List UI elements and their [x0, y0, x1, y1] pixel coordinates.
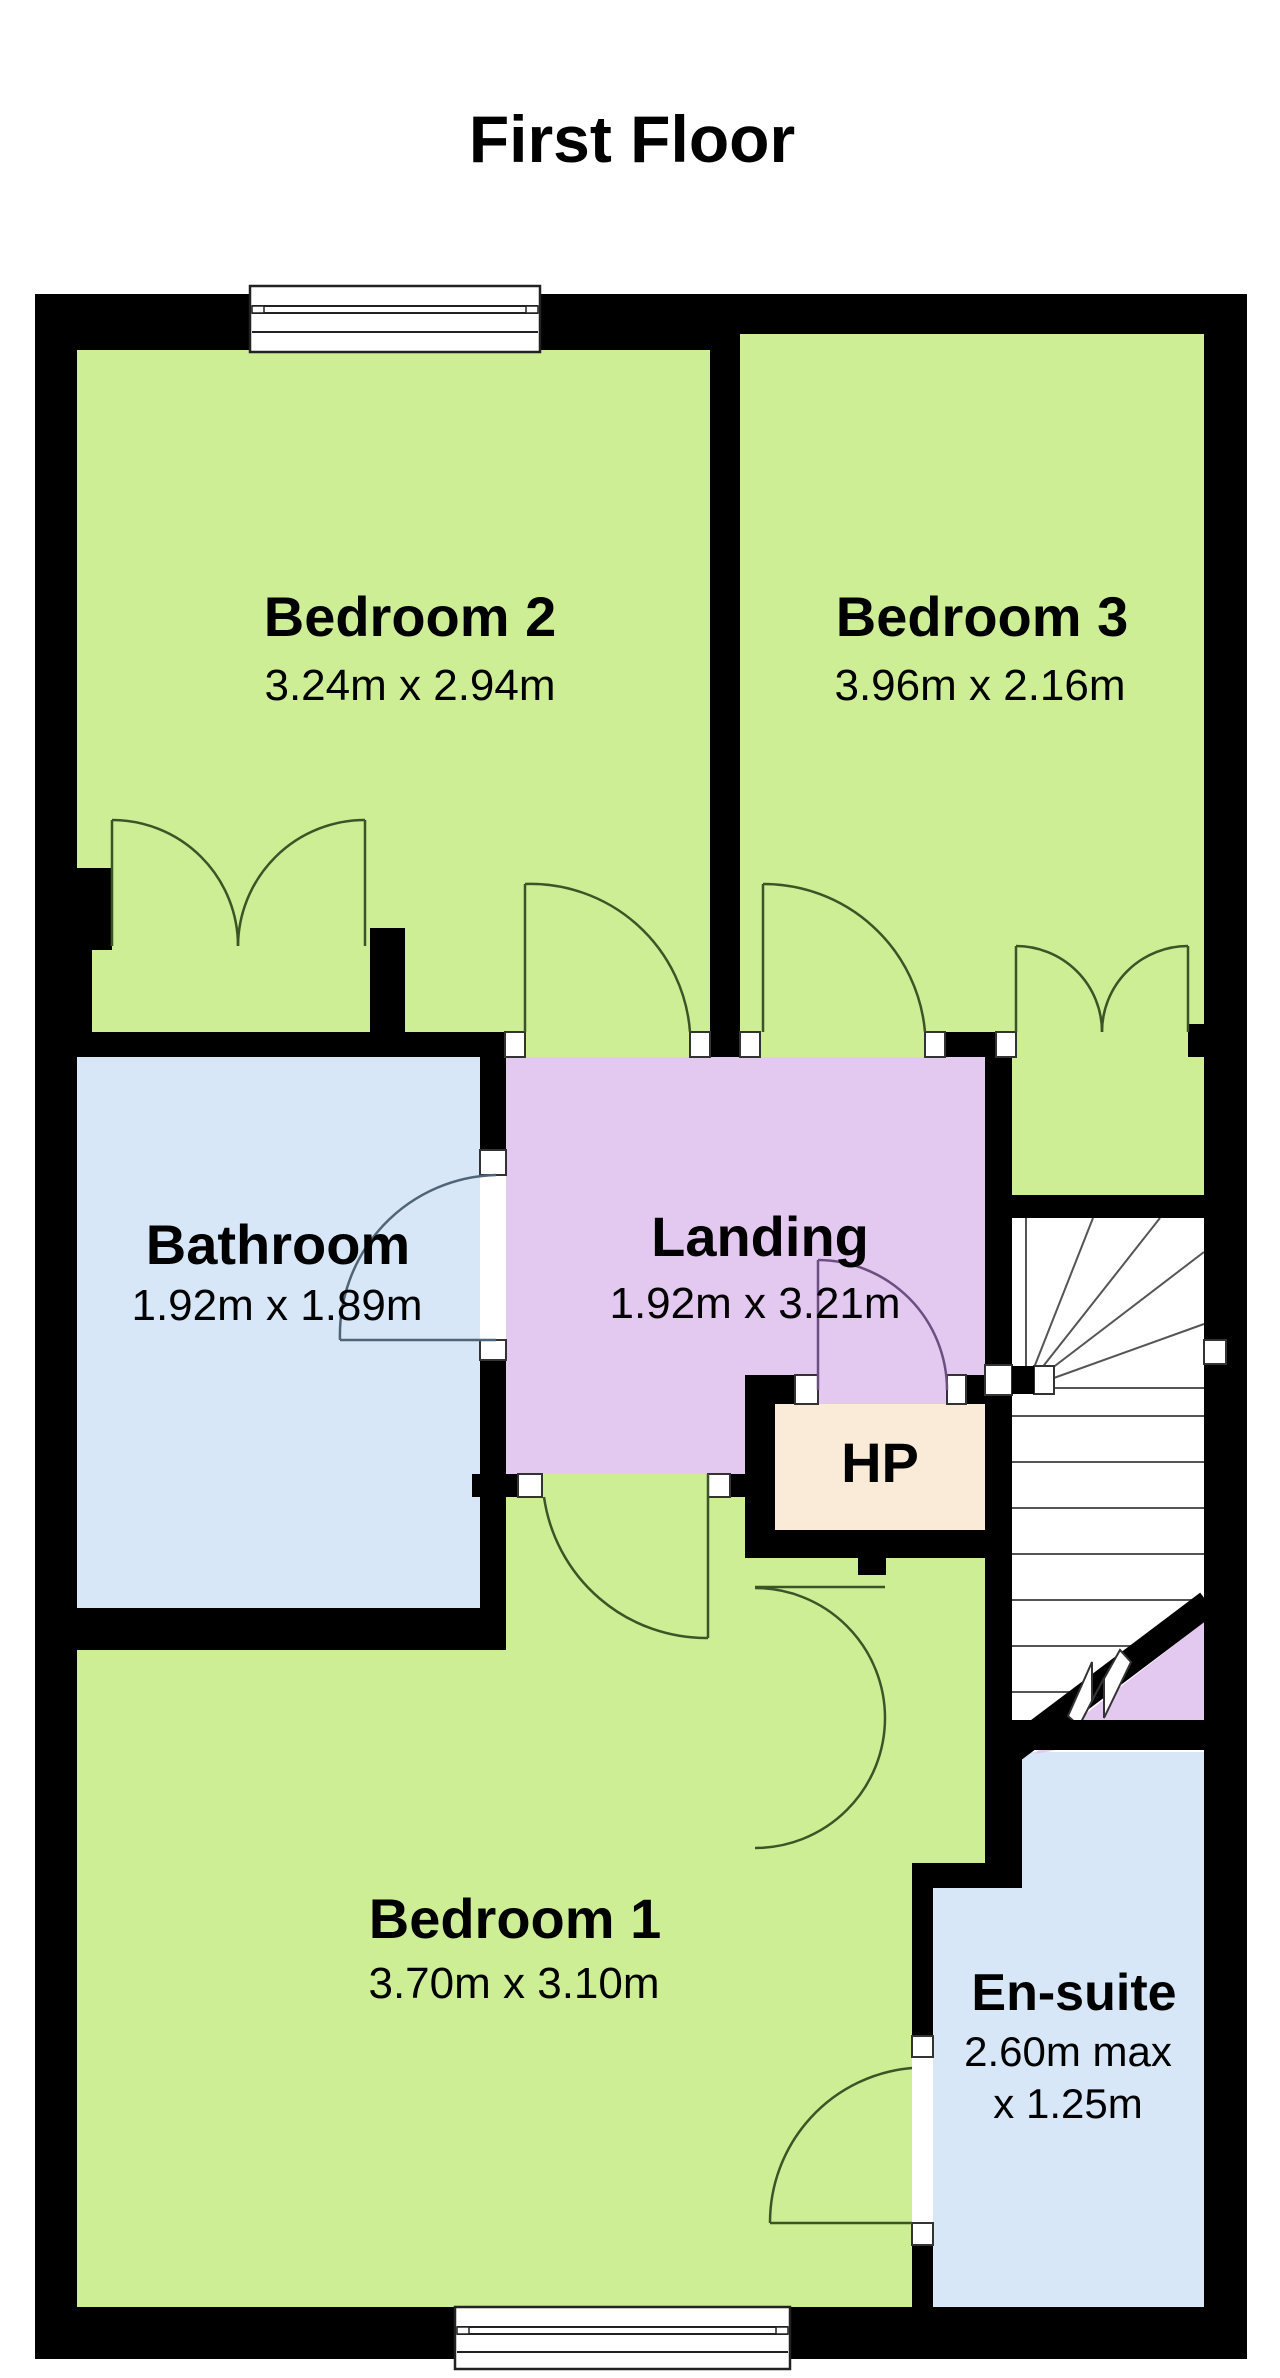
window-bottom-cap-left [457, 2327, 469, 2334]
wall-stairs-left-lower [985, 1395, 1012, 1752]
jamb-hp-right [947, 1375, 966, 1404]
jamb-ensuite-top [912, 2036, 933, 2057]
window-top [250, 286, 540, 352]
jamb-stair-wall-gap [985, 1365, 1012, 1395]
floorplan-page: First Floor Bedroom 2 3.24m x 2.94m Bedr… [0, 0, 1280, 2378]
wall-top-right [740, 294, 1247, 334]
jamb-bedroom3-right [925, 1032, 945, 1057]
window-top-cap-right [526, 306, 538, 313]
jamb-bedroom1-left [518, 1474, 542, 1497]
floorplan-svg: First Floor Bedroom 2 3.24m x 2.94m Bedr… [0, 0, 1280, 2378]
label-bedroom1-dims: 3.70m x 3.10m [368, 1959, 659, 2008]
wall-ensuite-top [1012, 1720, 1204, 1750]
wall-bedrooms-bottom-a [77, 1032, 505, 1057]
jamb-bathroom-bottom [480, 1340, 506, 1360]
label-ensuite-dims2: x 1.25m [993, 2080, 1142, 2127]
wall-left [35, 294, 77, 2359]
window-top-cap-left [252, 306, 264, 313]
room-bedroom1-vestibule-fill [506, 1497, 750, 1650]
jamb-bedroom1-right [708, 1474, 730, 1497]
wall-bedroom2-bedroom3 [710, 294, 740, 1032]
wall-closet-right-stub [1188, 1024, 1204, 1057]
wall-bedroom1-ensuite-a [912, 1888, 933, 2036]
label-hp: HP [841, 1431, 919, 1494]
room-bedroom1-right-fill [912, 1650, 985, 1863]
label-bathroom-name: Bathroom [146, 1213, 410, 1276]
wall-stairwell-top [985, 1195, 1204, 1218]
wall-bathroom-right-upper [480, 1057, 506, 1150]
label-landing-name: Landing [651, 1205, 869, 1268]
room-bedroom1-doorway-fill [542, 1474, 708, 1497]
jamb-stair-newel-white [1034, 1366, 1054, 1394]
jamb-hp-left [795, 1375, 818, 1404]
window-bottom-cap-right [776, 2327, 788, 2334]
wall-bedrooms-bottom-b [710, 1032, 740, 1057]
room-bathroom-fill [77, 1057, 480, 1608]
window-bottom [455, 2307, 790, 2369]
wall-bedroom1-ensuite-b [912, 2245, 933, 2307]
wall-landing-bottom-left [472, 1474, 518, 1497]
wall-hp-top-a [745, 1375, 795, 1404]
jamb-closet-left [996, 1032, 1016, 1057]
window-top-frame [250, 286, 540, 352]
jamb-ensuite-bottom [912, 2223, 933, 2245]
wall-bathroom-bottom [77, 1608, 506, 1650]
wall-bedroom2-chimney [77, 868, 112, 950]
room-ensuite-upper-fill [1022, 1750, 1204, 1888]
wall-ensuite-jog [912, 1863, 1022, 1888]
label-bathroom-dims: 1.92m x 1.89m [131, 1281, 422, 1330]
label-bedroom3-dims: 3.96m x 2.16m [834, 661, 1125, 710]
room-bedroom3-closet-fill [1012, 1032, 1204, 1195]
jamb-bedroom2-left [505, 1032, 525, 1057]
label-bedroom1-name: Bedroom 1 [369, 1887, 662, 1950]
label-ensuite-name: En-suite [971, 1964, 1176, 2022]
jamb-bedroom2-right [690, 1032, 710, 1057]
label-landing-dims: 1.92m x 3.21m [609, 1279, 900, 1328]
page-title: First Floor [469, 102, 795, 176]
label-bedroom2-dims: 3.24m x 2.94m [264, 661, 555, 710]
window-bottom-frame [455, 2307, 790, 2369]
label-ensuite-dims1: 2.60m max [964, 2028, 1172, 2075]
jamb-bathroom-top [480, 1150, 506, 1175]
stair-newel-post [1012, 1366, 1034, 1394]
wall-connector-vertical [480, 1497, 506, 1608]
label-bedroom3-name: Bedroom 3 [836, 585, 1129, 648]
wall-bedroom2-step [77, 950, 92, 1032]
jamb-bedroom3-left [740, 1032, 760, 1057]
wall-hp-top-b [966, 1375, 985, 1404]
wall-hp-bottom-stub [858, 1558, 886, 1575]
label-bedroom2-name: Bedroom 2 [264, 585, 557, 648]
wall-right [1204, 294, 1247, 2359]
jamb-stair-right-wall [1204, 1340, 1226, 1364]
wall-hp-bottom [745, 1530, 1012, 1558]
wall-bedroom2-alcove-stub [370, 928, 405, 1032]
